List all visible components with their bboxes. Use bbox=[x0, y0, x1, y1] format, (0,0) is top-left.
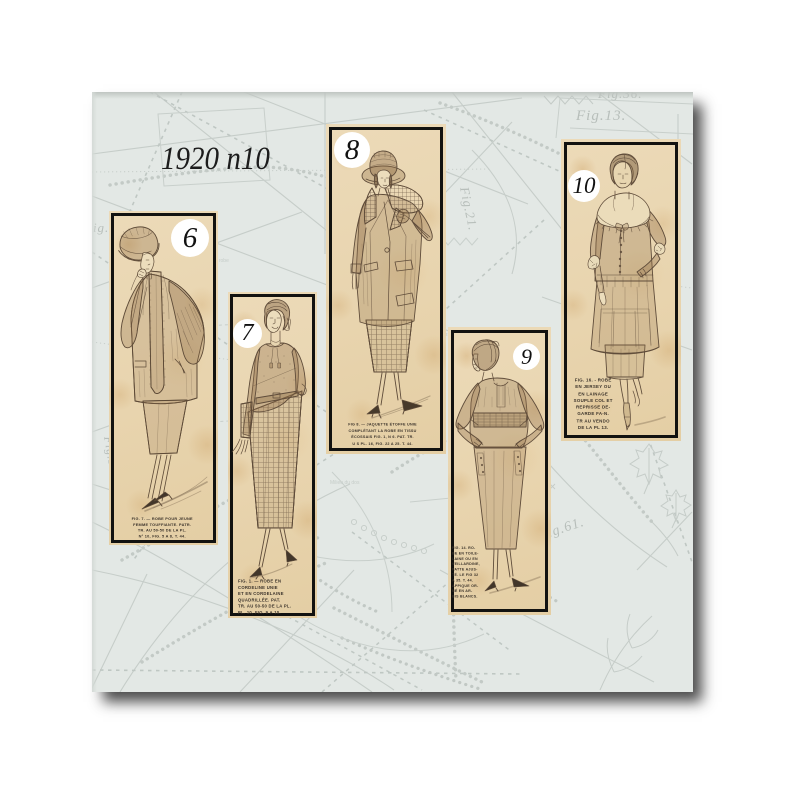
svg-text:Fig.13.: Fig.13. bbox=[575, 108, 626, 124]
svg-text:Fig.21.: Fig.21. bbox=[457, 185, 481, 233]
svg-text:Milieu du dos: Milieu du dos bbox=[330, 480, 360, 486]
